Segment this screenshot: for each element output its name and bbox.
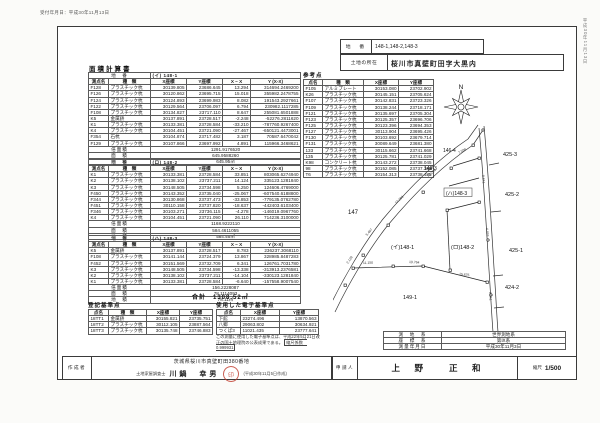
scale-value: 1/500	[545, 365, 561, 372]
area-table-148-1: 地 番(イ) 148-1測点名種 類X座標Y座標X − XY (X-X)F128…	[88, 72, 301, 165]
parcel-number-value: 148-1,148-2,148-3	[372, 40, 421, 53]
land-location-label: 土地の所在	[341, 55, 388, 70]
table-cell: 測量年月日	[384, 344, 442, 350]
registration-seal-icon: 印	[222, 365, 240, 383]
reception-date-note: 受付年月日：平成30年11月13日	[40, 10, 109, 16]
reference-points-table: 点名種 類X座標Y座標F105アルミプレート30153.08023702.902…	[303, 79, 434, 178]
geodetic-table: 測 地 系世界測地系座 標 系第Ⅸ系測量年月日平成30年11月3日	[383, 331, 566, 350]
scale-box: 縮尺 1/500	[517, 357, 576, 379]
applicant-label: 申請人	[333, 357, 358, 379]
area-total: 合計 1308.52㎡	[192, 292, 249, 301]
preparer-address: 茨城県桜川市真壁町田380番地	[95, 358, 328, 365]
preparer-label: 作成者	[63, 357, 92, 379]
table-row: 測量年月日平成30年11月3日	[384, 344, 566, 350]
table-cell: 30135.748	[147, 328, 180, 334]
reference-points-title: 参考点	[303, 71, 323, 79]
table-cell: 平成30年11月3日	[442, 344, 566, 350]
preparer-name: 川鍋 幸男	[169, 369, 219, 379]
table-cell: プラスチック杭	[109, 322, 147, 328]
scanned-survey-document: { "meta": { "top_note": "受付年月日：平成30年11月1…	[0, 0, 600, 423]
table-cell: プラスチック杭	[323, 172, 364, 178]
table-cell: 18TT3	[89, 328, 109, 334]
area-table-148-2: 地 番(ロ) 148-2測点名種 類X座標Y座標X − XY (X-X)K1プラ…	[88, 159, 301, 240]
side-margin-note: 平成30年11月13日	[582, 18, 588, 128]
preparer-content: 茨城県桜川市真壁町田380番地 土地家屋調査士 川鍋 幸男 印 (平成30年11…	[92, 357, 331, 379]
parcel-number-label: 地 番	[341, 40, 372, 53]
table-row: 18TT3プラスチック杭30135.74823746.883	[89, 328, 213, 334]
preparer-date-note: (平成30年11月5日作成)	[243, 371, 286, 377]
preparer-role: 土地家屋調査士	[136, 371, 165, 377]
table-cell: プラスチック杭	[109, 328, 147, 334]
table-cell: 23738.485	[399, 172, 434, 178]
preparer-box: 作成者 茨城県桜川市真壁町田380番地 土地家屋調査士 川鍋 幸男 印 (平成3…	[62, 356, 332, 380]
table-cell: 30154.313	[364, 172, 399, 178]
land-location-value: 桜川市真壁町田字大黒内	[388, 55, 480, 70]
table-cell: T6	[304, 172, 323, 178]
table-cell: 23746.883	[180, 328, 213, 334]
applicant-name: 上 野 正 和	[358, 357, 517, 379]
applicant-box: 申請人 上 野 正 和 縮尺 1/500	[332, 356, 577, 380]
table-row: T6プラスチック杭30154.31323738.485	[304, 172, 434, 178]
electronic-points-note: この測量に使用した電子基準点は、平成22年5月21日改正の国土地理院の公表成果で…	[216, 334, 322, 351]
land-location-box: 土地の所在 桜川市真壁町田字大黒内	[340, 54, 564, 71]
electronic-points-table: 点名X座標Y座標下館23274.49613870.563八郷29063.8023…	[216, 309, 319, 335]
scale-label: 縮尺	[533, 365, 542, 371]
electronic-points-title: 使用した電子基準点	[216, 301, 275, 309]
registered-points-title: 登記基準点	[88, 301, 121, 309]
registered-points-table: 点名種 類X座標Y座標18TT1金属鋲30155.82123735.75118T…	[88, 309, 213, 335]
parcel-number-box: 地 番 148-1,148-2,148-3	[340, 39, 484, 54]
